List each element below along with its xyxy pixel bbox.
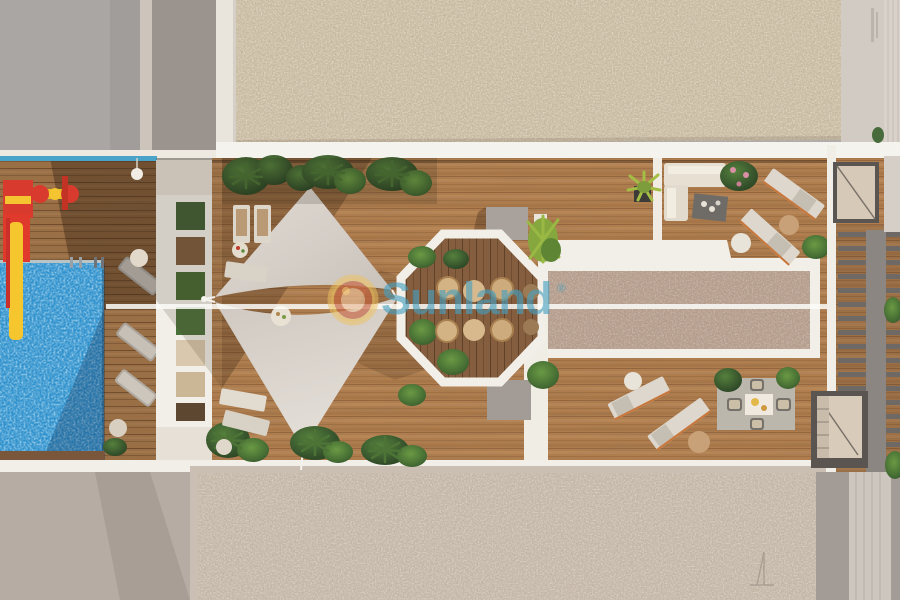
svg-text:Sunland: Sunland [381,273,552,324]
svg-text:®: ® [557,281,566,295]
